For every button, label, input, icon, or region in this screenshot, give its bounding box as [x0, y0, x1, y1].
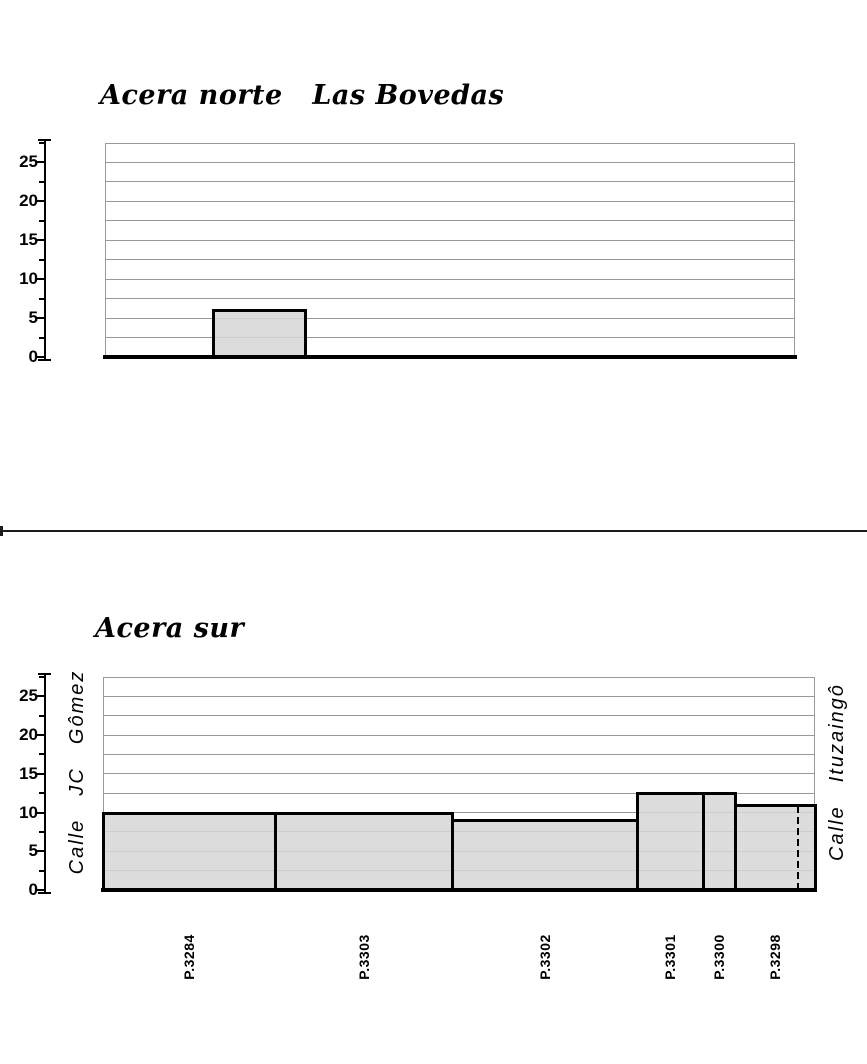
x-axis-label: P.3302	[536, 912, 554, 1002]
building-bar-fill	[452, 820, 637, 890]
building-bar-fill	[637, 793, 703, 890]
gridline	[105, 337, 795, 338]
building-bar-top-edge	[451, 819, 638, 822]
gridline	[105, 259, 795, 260]
y-axis-top-cap	[38, 673, 51, 675]
street-label-jc-gomez: Calle JC Gômez	[66, 652, 88, 892]
y-axis-tick	[37, 734, 45, 736]
building-bar-side-edge	[102, 812, 105, 890]
y-axis-tick	[37, 317, 45, 319]
section-divider-line	[0, 530, 867, 532]
gridline	[105, 162, 795, 163]
building-bar-side-edge	[734, 792, 737, 890]
building-bar-fill	[103, 813, 275, 890]
y-axis-tick	[37, 695, 45, 697]
y-axis-tick	[39, 831, 45, 833]
building-bar-side-edge	[636, 792, 639, 890]
gridline	[105, 201, 795, 202]
y-axis-tick-label: 0	[2, 347, 38, 367]
building-bar-top-edge	[212, 309, 306, 312]
building-bar-fill	[703, 793, 735, 890]
gridline	[105, 298, 795, 299]
y-axis-tick	[39, 676, 45, 678]
y-axis-tick	[37, 239, 45, 241]
y-axis-tick	[37, 278, 45, 280]
building-bar-side-edge	[814, 804, 817, 890]
y-axis-tick-label: 25	[2, 152, 38, 172]
y-axis-tick	[37, 812, 45, 814]
gridline	[103, 735, 815, 736]
y-axis-top-cap	[38, 139, 51, 141]
dashed-property-line	[797, 805, 799, 890]
building-bar-side-edge	[702, 792, 705, 890]
y-axis-tick-label: 10	[2, 803, 38, 823]
x-axis-label: P.3300	[710, 912, 728, 1002]
north-chart-title: Acera norte Las Bovedas	[100, 80, 504, 112]
y-axis-tick	[37, 161, 45, 163]
y-axis-tick-label: 0	[2, 880, 38, 900]
divider-left-cap	[0, 526, 3, 536]
y-axis-tick	[37, 773, 45, 775]
x-axis-label: P.3303	[355, 912, 373, 1002]
gridline	[105, 181, 795, 182]
gridline	[103, 773, 815, 774]
gridline	[103, 696, 815, 697]
y-axis-tick-label: 15	[2, 230, 38, 250]
building-bar-fill	[735, 805, 815, 890]
y-axis-tick-label: 10	[2, 269, 38, 289]
y-axis-tick	[37, 850, 45, 852]
gridline	[105, 220, 795, 221]
y-axis-tick	[39, 181, 45, 183]
ground-baseline	[101, 888, 817, 892]
building-bar-fill	[275, 813, 452, 890]
ground-baseline	[103, 355, 797, 359]
x-axis-label: P.3301	[661, 912, 679, 1002]
building-bar-side-edge	[274, 812, 277, 890]
y-axis-tick	[39, 220, 45, 222]
gridline	[103, 715, 815, 716]
y-axis-tick-label: 15	[2, 764, 38, 784]
y-axis-tick	[39, 337, 45, 339]
building-bar-side-edge	[451, 812, 454, 890]
street-label-ituzaingo: Calle Ituzaingô	[826, 652, 848, 892]
y-axis-tick	[39, 715, 45, 717]
y-axis-tick	[39, 792, 45, 794]
gridline	[105, 240, 795, 241]
x-axis-label: P.3284	[180, 912, 198, 1002]
y-axis-tick	[39, 259, 45, 261]
building-bar-fill	[213, 310, 305, 357]
gridline	[105, 318, 795, 319]
building-bar-top-edge	[734, 804, 816, 807]
y-axis-tick-label: 20	[2, 191, 38, 211]
gridline	[103, 754, 815, 755]
building-bar-side-edge	[304, 309, 307, 357]
gridline	[105, 279, 795, 280]
y-axis-tick	[39, 298, 45, 300]
y-axis-line	[44, 139, 46, 361]
x-axis-label: P.3298	[766, 912, 784, 1002]
building-bar-side-edge	[212, 309, 215, 357]
y-axis-tick	[37, 889, 45, 891]
y-axis-line	[44, 673, 46, 894]
y-axis-tick-label: 5	[2, 841, 38, 861]
y-axis-bottom-cap	[38, 892, 51, 894]
plot-frame	[105, 143, 795, 357]
building-bar-top-edge	[702, 792, 736, 795]
y-axis-tick-label: 25	[2, 686, 38, 706]
building-bar-top-edge	[636, 792, 704, 795]
y-axis-tick	[37, 200, 45, 202]
building-bar-top-edge	[274, 812, 453, 815]
y-axis-tick	[39, 870, 45, 872]
building-bar-top-edge	[102, 812, 276, 815]
y-axis-tick	[39, 142, 45, 144]
y-axis-tick	[37, 356, 45, 358]
profile-sheet: Acera norte Las Bovedas Acera sur Calle …	[0, 0, 867, 1064]
y-axis-tick-label: 20	[2, 725, 38, 745]
y-axis-tick	[39, 753, 45, 755]
y-axis-bottom-cap	[38, 359, 51, 361]
y-axis-tick-label: 5	[2, 308, 38, 328]
south-chart-title: Acera sur	[95, 613, 244, 645]
